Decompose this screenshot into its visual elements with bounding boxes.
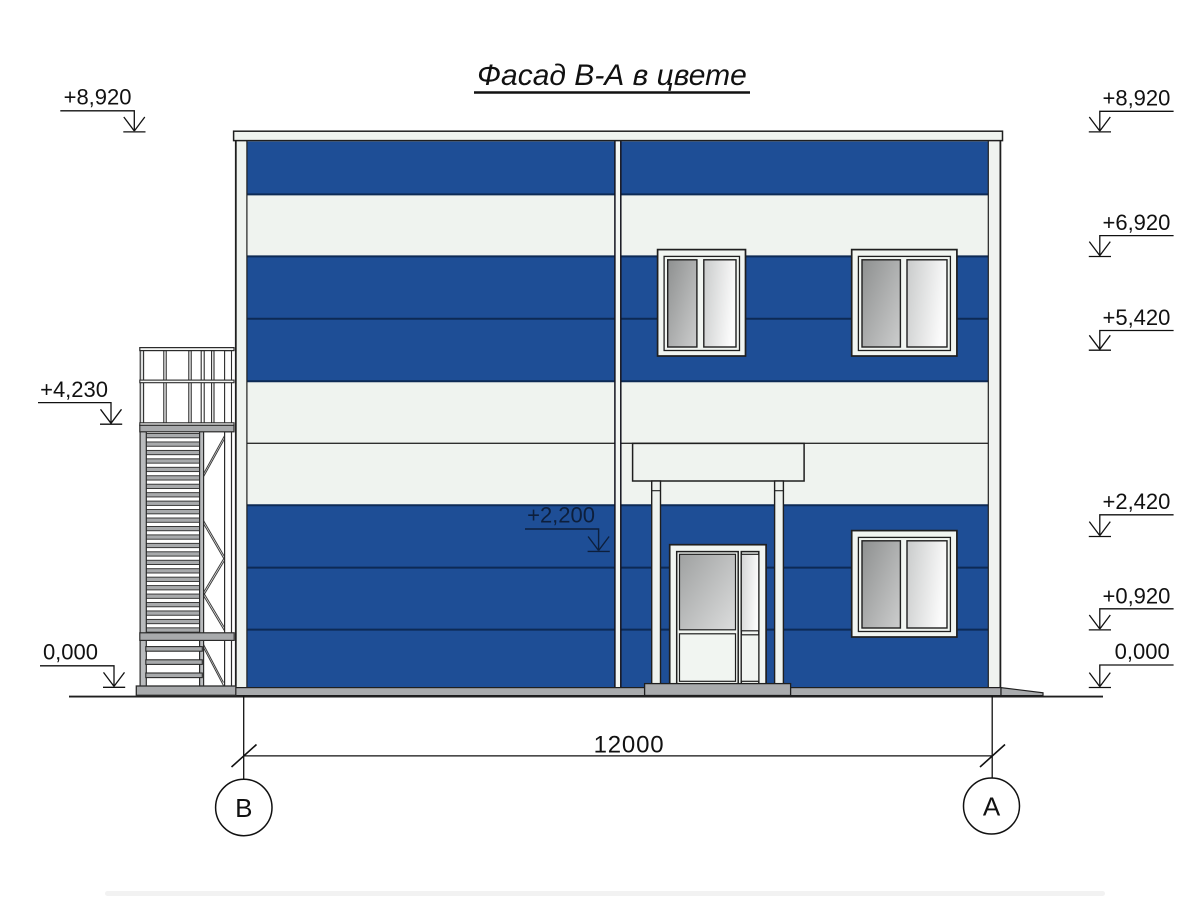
svg-text:+8,920: +8,920 [1102, 86, 1170, 111]
svg-text:+5,420: +5,420 [1102, 305, 1170, 330]
svg-text:+8,920: +8,920 [64, 85, 132, 110]
svg-text:+2,200: +2,200 [527, 503, 595, 528]
svg-text:+6,920: +6,920 [1102, 210, 1170, 235]
svg-text:0,000: 0,000 [43, 639, 98, 664]
svg-text:12000: 12000 [594, 732, 665, 759]
svg-text:+4,230: +4,230 [40, 377, 108, 402]
svg-text:А: А [983, 791, 1001, 821]
svg-text:+0,920: +0,920 [1102, 583, 1170, 608]
svg-text:0,000: 0,000 [1115, 639, 1170, 664]
svg-text:В: В [235, 793, 252, 823]
svg-text:Фасад В-А в цвете: Фасад В-А в цвете [477, 59, 747, 92]
svg-text:+2,420: +2,420 [1102, 489, 1170, 514]
